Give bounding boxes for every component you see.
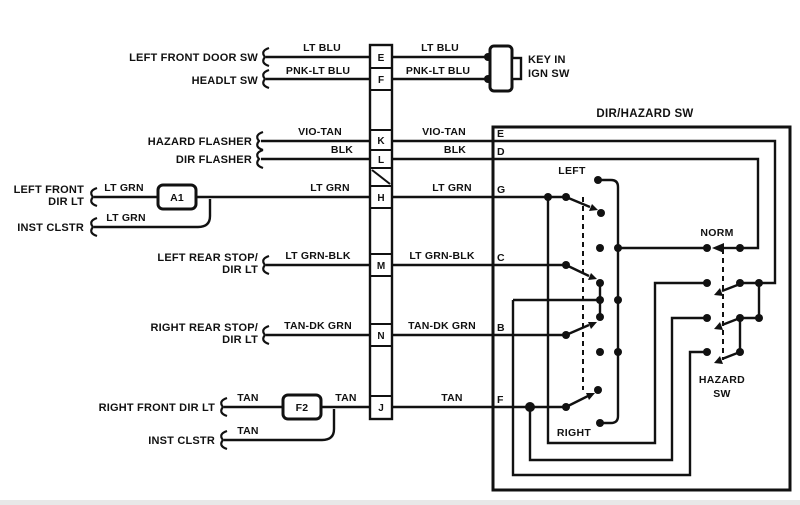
wire-label-tan-mid: TAN [335, 392, 356, 404]
wire-color-labels: LT BLU LT BLU PNK-LT BLU PNK-LT BLU VIO-… [104, 42, 476, 437]
right-wires [392, 57, 493, 407]
component-labels: LEFT FRONT DOOR SW HEADLT SW HAZARD FLAS… [14, 52, 259, 447]
box-terminal-e: E [497, 128, 504, 140]
wire-label-tan-dk-grn-right: TAN-DK GRN [408, 320, 476, 332]
strip-terminal-n: N [377, 331, 384, 342]
junction-f2: F2 [283, 395, 321, 419]
strip-terminal-j: J [378, 403, 384, 414]
strip-terminal-k: K [377, 136, 385, 147]
box-terminal-c: C [497, 252, 505, 264]
wire-label-vio-tan-left: VIO-TAN [298, 126, 342, 138]
label-left-front-door-sw: LEFT FRONT DOOR SW [129, 52, 258, 64]
box-internal-wires [493, 141, 775, 475]
label-left-front-dir-lt-1: LEFT FRONT [14, 184, 85, 196]
wire-label-lt-blu-right: LT BLU [421, 42, 459, 54]
strip-terminal-l: L [378, 155, 384, 166]
junction-a1: A1 [158, 185, 196, 209]
dir-hazard-title: DIR/HAZARD SW [596, 108, 693, 120]
dir-hazard-wiring-diagram: A1 F2 E F K L H M N J KEY IN IGN SW DI [0, 0, 800, 500]
junction-a1-label: A1 [170, 192, 184, 204]
label-norm: NORM [700, 227, 733, 239]
box-terminal-d: D [497, 146, 505, 158]
label-inst-clstr-bottom: INST CLSTR [148, 435, 215, 447]
label-left-front-dir-lt-2: DIR LT [48, 196, 84, 208]
left-wires [94, 57, 370, 440]
box-terminal-b: B [497, 322, 505, 334]
wire-label-blk-left: BLK [331, 144, 353, 156]
wire-label-lt-grn-mid: LT GRN [310, 182, 350, 194]
strip-terminal-h: H [377, 193, 384, 204]
wire-label-pnk-lt-blu-left: PNK-LT BLU [286, 65, 350, 77]
label-right: RIGHT [557, 427, 591, 439]
connector-strip: E F K L H M N J [370, 45, 392, 419]
wire-label-blk-right: BLK [444, 144, 466, 156]
junction-f2-label: F2 [296, 402, 309, 414]
strip-terminal-m: M [377, 261, 385, 272]
label-headlt-sw: HEADLT SW [192, 75, 259, 87]
box-terminal-g: G [497, 184, 505, 196]
wire-label-lt-grn-blk-right: LT GRN-BLK [409, 250, 475, 262]
label-hazard-1: HAZARD [699, 374, 745, 386]
wire-label-lt-grn-inst: LT GRN [106, 212, 146, 224]
label-left: LEFT [558, 165, 586, 177]
wire-label-vio-tan-right: VIO-TAN [422, 126, 466, 138]
wire-label-tan-dk-grn-left: TAN-DK GRN [284, 320, 352, 332]
label-inst-clstr-top: INST CLSTR [17, 222, 84, 234]
wire-label-tan-inst: TAN [237, 425, 258, 437]
label-left-rear-1: LEFT REAR STOP/ [157, 252, 258, 264]
strip-terminal-f: F [378, 75, 384, 86]
key-ign-label-2: IGN SW [528, 68, 570, 80]
wire-label-lt-grn-blk-left: LT GRN-BLK [285, 250, 351, 262]
wire-label-lt-grn-right: LT GRN [432, 182, 472, 194]
key-ign-label-1: KEY IN [528, 54, 566, 66]
label-right-front-dir-lt: RIGHT FRONT DIR LT [99, 402, 216, 414]
component-braces [91, 48, 269, 449]
label-right-rear-2: DIR LT [222, 334, 258, 346]
wiring-diagram-page: A1 F2 E F K L H M N J KEY IN IGN SW DI [0, 0, 800, 500]
wire-label-tan-in: TAN [237, 392, 258, 404]
label-left-rear-2: DIR LT [222, 264, 258, 276]
box-terminal-f: F [497, 394, 504, 406]
wire-label-lt-grn-in: LT GRN [104, 182, 144, 194]
key-in-ign-switch: KEY IN IGN SW [484, 46, 570, 91]
label-hazard-2: SW [713, 388, 731, 400]
label-right-rear-1: RIGHT REAR STOP/ [150, 322, 258, 334]
strip-terminal-e: E [378, 53, 385, 64]
label-hazard-flasher: HAZARD FLASHER [148, 136, 252, 148]
dir-hazard-switch-box: DIR/HAZARD SW E D G C B F [493, 108, 790, 490]
label-dir-flasher: DIR FLASHER [176, 154, 252, 166]
wire-label-tan-right: TAN [441, 392, 462, 404]
wire-label-pnk-lt-blu-right: PNK-LT BLU [406, 65, 470, 77]
wire-label-lt-blu-left: LT BLU [303, 42, 341, 54]
